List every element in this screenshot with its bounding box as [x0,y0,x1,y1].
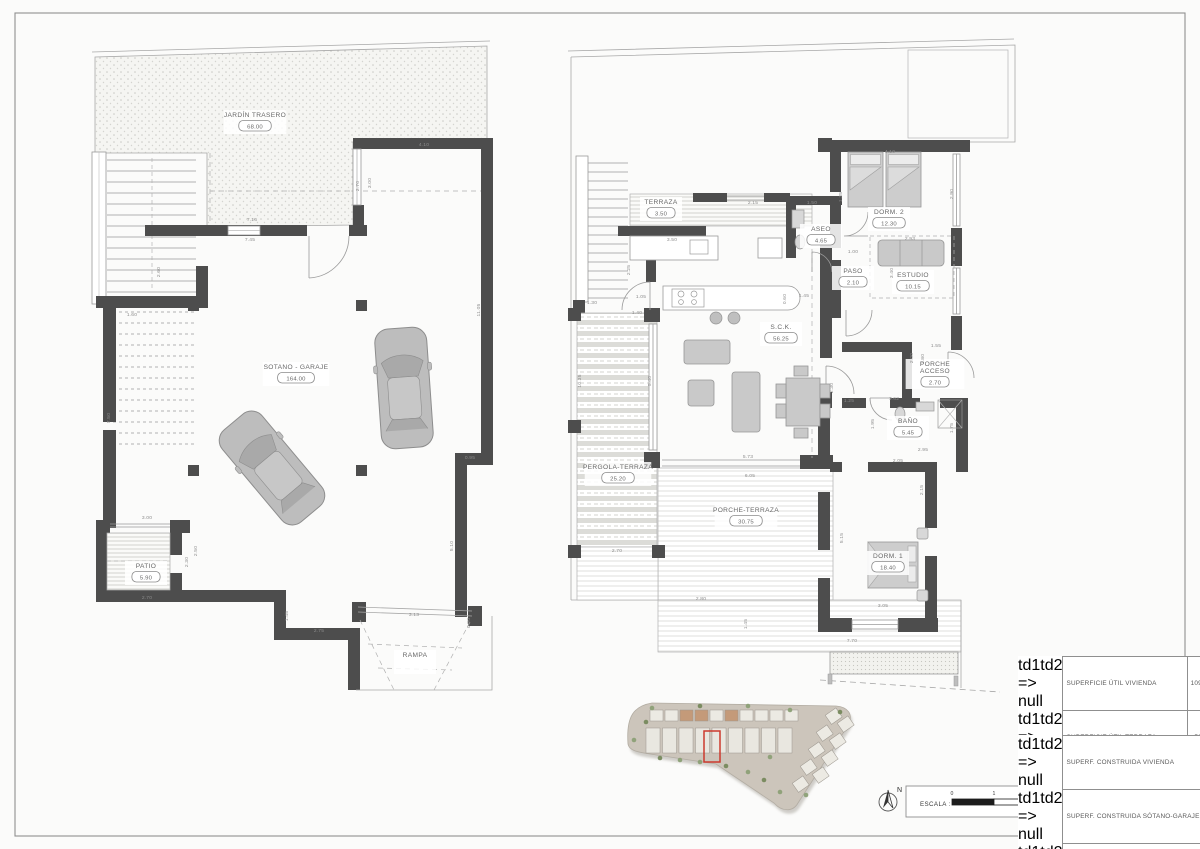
dimension-label: 3.00 [142,515,152,521]
dimension-label: 11.05 [476,303,482,316]
table-row: td1td2 => nullTOTAL SUPERFICIE CONSTRUID… [1018,844,1200,849]
table-row: td1td2 => nullSUPERFICIE ÚTIL VIVIENDA10… [1018,657,1200,711]
dimension-label: 2.70 [355,181,361,191]
dimension-label: 5.40 [647,376,653,386]
dimension-label: 7.45 [245,237,255,243]
dimension-label: 2.15 [748,200,758,206]
svg-text:5.45: 5.45 [902,430,915,436]
room-label-paso: PASO2.10 [832,266,874,290]
table-cell-label: SUPERF. CONSTRUIDA SÓTANO-GARAJE [1063,790,1200,844]
dimension-label: 10.35 [577,374,583,387]
bed-single-1 [848,152,883,207]
dimension-label: 0.60 [782,294,788,304]
dimension-label: 2.90 [949,189,955,199]
room-label-estudio: ESTUDIO10.15 [892,270,934,294]
porch-deck [658,468,833,600]
room-label-sck: S.C.K.56.25 [760,322,802,346]
table-superficie-construida: td1td2 => nullSUPERF. CONSTRUIDA VIVIEND… [1018,735,1200,849]
dimension-label: 2.00 [909,353,915,363]
dimension-label: 2.70 [142,595,152,601]
site-plan [628,703,854,814]
dimension-label: 7.50 [106,413,112,423]
dimension-label: 1.25 [844,398,854,404]
dimension-label: 2.75 [314,628,324,634]
svg-text:ESTUDIO: ESTUDIO [897,272,929,279]
dimension-label: 2.15 [919,485,925,495]
car-2 [211,403,333,532]
dimension-label: 1.45 [284,611,290,621]
svg-text:DORM. 1: DORM. 1 [873,553,903,560]
dimension-label: 2.80 [696,596,706,602]
svg-text:ASEO: ASEO [811,226,831,233]
dimension-label: 3.50 [667,237,677,243]
dimension-label: 3.40 [889,268,895,278]
room-label-sotano: SOTANO - GARAJE164.00 [263,362,330,386]
svg-text:4.65: 4.65 [815,238,828,244]
dimension-label: 5.73 [743,454,753,460]
dimension-label: 4.10 [885,149,895,155]
scale-label: ESCALA : [920,801,951,808]
svg-text:PERGOLA-TERRAZA: PERGOLA-TERRAZA [583,464,653,471]
dimension-label: 2.50 [193,546,199,556]
dimension-label: 7.16 [247,217,257,223]
table-cell-label: SUPERFICIE ÚTIL VIVIENDA [1063,657,1187,711]
svg-text:PORCHE-TERRAZA: PORCHE-TERRAZA [713,507,779,514]
planter [830,652,958,674]
dimension-label: 2.70 [612,548,622,554]
dimension-label: 1.75 [949,423,955,433]
svg-text:3.50: 3.50 [655,211,668,217]
room-label-dorm2: DORM. 212.30 [868,207,910,231]
dimension-label: 2.30 [829,383,835,393]
svg-text:TERRAZA: TERRAZA [644,199,677,206]
plan-sheet: JARDÍN TRASERO68.00SOTANO - GARAJE164.00… [0,0,1200,849]
dimension-label: 2.95 [918,447,928,453]
svg-text:PATIO: PATIO [136,563,157,570]
dimension-label: 1.00 [848,249,858,255]
dimension-label: 1.30 [587,300,597,306]
svg-text:JARDÍN TRASERO: JARDÍN TRASERO [224,110,286,119]
room-label-bano: BAÑO5.45 [887,416,929,440]
svg-text:68.00: 68.00 [247,124,263,130]
svg-text:164.00: 164.00 [286,376,306,382]
svg-text:25.20: 25.20 [610,476,626,482]
dimension-label: 7.70 [847,638,857,644]
table-cell-value: 109.30 [1187,657,1200,711]
room-label-terraza: TERRAZA3.50 [640,197,682,221]
dimension-label: 2.25 [626,265,632,275]
svg-text:56.25: 56.25 [773,336,789,342]
dimension-label: 1.50 [807,200,817,206]
dimension-label: 1.55 [931,343,941,349]
north-label: N [897,787,902,794]
svg-text:2.10: 2.10 [847,280,860,286]
svg-text:BAÑO: BAÑO [898,416,918,425]
svg-text:ACCESO: ACCESO [920,368,950,375]
room-label-aseo: ASEO4.65 [800,224,842,248]
table-row: td1td2 => nullSUPERF. CONSTRUIDA SÓTANO-… [1018,790,1200,844]
svg-text:18.40: 18.40 [880,565,896,571]
svg-text:RAMPA: RAMPA [403,652,428,659]
svg-text:PASO: PASO [843,268,862,275]
room-label-jardin: JARDÍN TRASERO68.00 [224,110,287,134]
dimension-label: 0.90 [466,618,472,628]
dimension-label: 1.62 [889,396,899,402]
room-label-patio: PATIO5.90 [125,561,167,585]
garage-door-arc [309,236,349,278]
dimension-label: 1.60 [127,312,137,318]
dimension-label: 2.60 [156,267,162,277]
pergola-deck [577,313,657,547]
svg-text:10.15: 10.15 [905,284,921,290]
svg-text:DORM. 2: DORM. 2 [874,209,904,216]
dimension-label: 1.35 [838,192,844,202]
dimension-label: 4.10 [419,142,429,148]
svg-text:5.90: 5.90 [140,575,153,581]
garden-area [95,46,487,227]
dimension-label: 1.40 [632,310,642,316]
car-1 [371,326,437,450]
room-label-porche: PORCHE-TERRAZA30.75 [713,505,779,529]
dimension-label: 3.00 [367,178,373,188]
svg-text:SOTANO - GARAJE: SOTANO - GARAJE [264,364,329,371]
dimension-label: 5.10 [449,541,455,551]
studio-sofa [878,240,944,266]
svg-text:12.30: 12.30 [881,221,897,227]
dimension-label: 2.93 [905,236,915,242]
dimension-label: 0.95 [465,455,475,461]
room-label-pergola: PERGOLA-TERRAZA25.20 [583,462,653,486]
living-furniture [684,340,830,438]
dimension-label: 1.45 [799,293,809,299]
dimension-label: 1.80 [920,354,926,364]
table-cell-label: SUPERF. CONSTRUIDA VIVIENDA [1063,736,1200,790]
dimension-label: 6.05 [745,473,755,479]
svg-text:S.C.K.: S.C.K. [770,324,791,331]
svg-text:2.70: 2.70 [929,380,942,386]
dimension-label: 2.05 [893,458,903,464]
scale-tick: 1 [993,791,996,797]
bed-single-2 [886,152,921,207]
north-arrow: N [879,787,902,811]
scale-tick: 0 [951,791,954,797]
dimension-label: 5.15 [839,533,845,543]
dimension-label: 2.30 [184,557,190,567]
dimension-label: 3.05 [878,603,888,609]
dimension-label: 1.45 [743,619,749,629]
svg-text:30.75: 30.75 [738,519,754,525]
dimension-label: 3.13 [409,612,419,618]
dimension-label: 1.95 [870,419,876,429]
table-cell-label: TOTAL SUPERFICIE CONSTRUIDA [1063,844,1200,849]
table-row: td1td2 => nullSUPERF. CONSTRUIDA VIVIEND… [1018,736,1200,790]
room-label-dorm1: DORM. 118.40 [867,551,909,575]
room-label-rampa: RAMPA [394,650,436,674]
dimension-label: 1.05 [636,294,646,300]
